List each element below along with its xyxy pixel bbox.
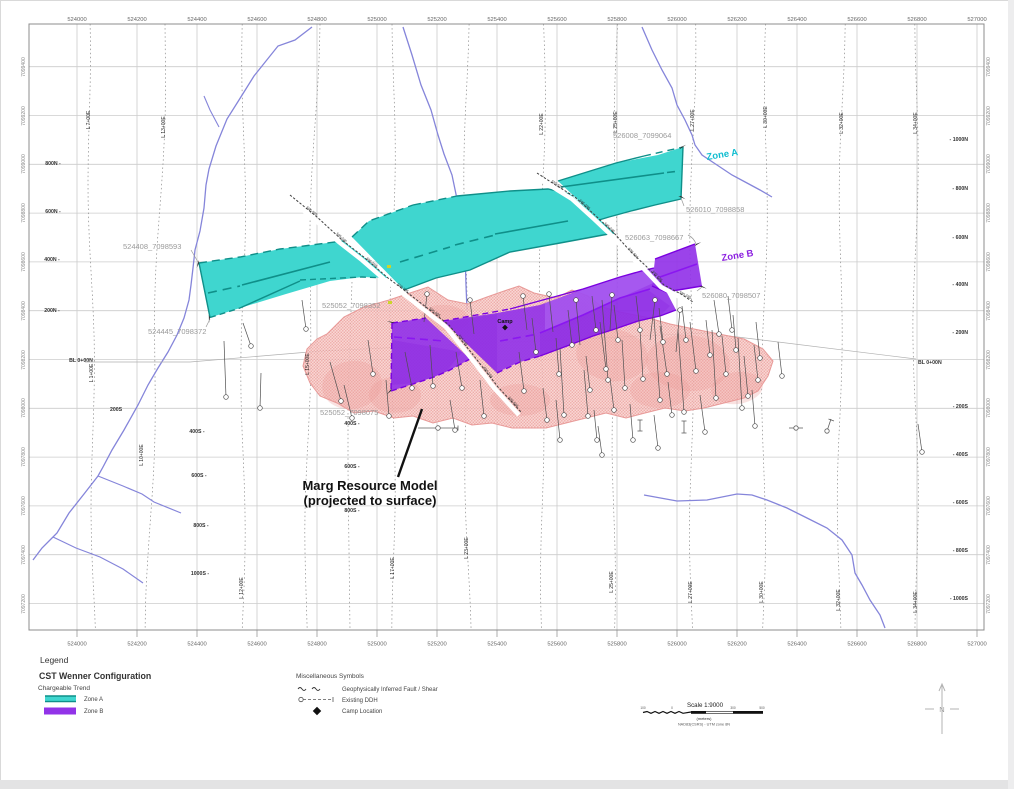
svg-text:7097200: 7097200 — [21, 594, 27, 614]
svg-text:L 13+00E: L 13+00E — [161, 116, 167, 138]
svg-text:800S -: 800S - — [193, 523, 209, 529]
svg-text:7098600: 7098600 — [986, 252, 992, 272]
svg-text:L 27+00E: L 27+00E — [688, 581, 694, 603]
svg-text:7098200: 7098200 — [21, 350, 27, 370]
svg-text:7099200: 7099200 — [986, 106, 992, 126]
svg-text:Chargeable Trend: Chargeable Trend — [38, 685, 90, 692]
svg-text:400S -: 400S - — [189, 429, 205, 435]
svg-text:500: 500 — [759, 706, 765, 710]
svg-text:526063_7098667: 526063_7098667 — [625, 233, 683, 242]
svg-text:526200: 526200 — [727, 17, 746, 23]
svg-text:7098400: 7098400 — [986, 301, 992, 321]
svg-text:526400: 526400 — [787, 642, 806, 648]
svg-text:524800: 524800 — [307, 642, 326, 648]
svg-text:525800: 525800 — [607, 17, 626, 23]
svg-text:800N -: 800N - — [45, 161, 61, 167]
svg-text:7099400: 7099400 — [986, 57, 992, 77]
svg-text:526600: 526600 — [847, 17, 866, 23]
svg-text:L 32+00E: L 32+00E — [836, 589, 842, 611]
svg-text:7097600: 7097600 — [986, 496, 992, 516]
svg-text:L 27+00E: L 27+00E — [690, 109, 696, 131]
svg-text:L 10+00E: L 10+00E — [139, 444, 145, 466]
svg-text:N: N — [939, 705, 944, 714]
svg-text:Marg Resource Model: Marg Resource Model — [302, 478, 437, 493]
svg-text:- 1000N: - 1000N — [950, 137, 969, 143]
svg-text:7098400: 7098400 — [21, 301, 27, 321]
svg-text:525400: 525400 — [487, 17, 506, 23]
svg-text:Camp Location: Camp Location — [342, 709, 382, 715]
svg-text:(projected to surface): (projected to surface) — [304, 493, 437, 508]
svg-text:524400: 524400 — [187, 642, 206, 648]
svg-text:200N -: 200N - — [44, 308, 60, 314]
svg-text:525600: 525600 — [547, 642, 566, 648]
svg-text:L 1+00E: L 1+00E — [89, 363, 95, 382]
svg-text:527000: 527000 — [967, 642, 986, 648]
svg-text:200S: 200S — [110, 407, 123, 413]
svg-text:L 32+00E: L 32+00E — [839, 112, 845, 134]
svg-text:- 200S: - 200S — [953, 404, 969, 410]
svg-text:BL 0+00N: BL 0+00N — [69, 358, 93, 364]
svg-text:7099000: 7099000 — [986, 154, 992, 174]
svg-text:Miscellaneous Symbols: Miscellaneous Symbols — [296, 673, 365, 680]
svg-text:7098200: 7098200 — [986, 350, 992, 370]
svg-text:524800: 524800 — [307, 17, 326, 23]
svg-text:524600: 524600 — [247, 642, 266, 648]
svg-text:525052_7098075: 525052_7098075 — [320, 408, 378, 417]
svg-text:7099400: 7099400 — [21, 57, 27, 77]
svg-text:524200: 524200 — [127, 17, 146, 23]
svg-text:7098000: 7098000 — [986, 398, 992, 418]
svg-text:524400: 524400 — [187, 17, 206, 23]
svg-text:526800: 526800 — [907, 642, 926, 648]
svg-text:0: 0 — [671, 706, 673, 710]
svg-text:- 600N: - 600N — [952, 235, 968, 241]
svg-text:525400: 525400 — [487, 642, 506, 648]
svg-text:526000: 526000 — [667, 17, 686, 23]
svg-text:7099000: 7099000 — [21, 154, 27, 174]
svg-text:Existing DDH: Existing DDH — [342, 698, 378, 704]
svg-text:7099200: 7099200 — [21, 106, 27, 126]
svg-text:Camp: Camp — [497, 319, 513, 325]
svg-text:L 17+00E: L 17+00E — [390, 557, 396, 579]
svg-text:526008_7099064: 526008_7099064 — [613, 131, 671, 140]
svg-text:7098800: 7098800 — [986, 203, 992, 223]
svg-text:524200: 524200 — [127, 642, 146, 648]
svg-text:7098600: 7098600 — [21, 252, 27, 272]
svg-text:- 800N: - 800N — [952, 186, 968, 192]
svg-text:L 22+00E: L 22+00E — [539, 113, 545, 135]
svg-text:Legend: Legend — [40, 655, 69, 665]
svg-text:7097600: 7097600 — [21, 496, 27, 516]
svg-text:7098800: 7098800 — [21, 203, 27, 223]
svg-text:524408_7098593: 524408_7098593 — [123, 242, 181, 251]
svg-text:- 1000S: - 1000S — [950, 596, 969, 602]
svg-text:7097400: 7097400 — [21, 545, 27, 565]
svg-text:L 25+00E: L 25+00E — [609, 571, 615, 593]
svg-text:NAD83(CSRS) - UTM zone 8N: NAD83(CSRS) - UTM zone 8N — [678, 723, 730, 727]
svg-text:524000: 524000 — [67, 17, 86, 23]
svg-text:L 34+00E: L 34+00E — [913, 591, 919, 613]
svg-text:7098000: 7098000 — [21, 398, 27, 418]
svg-text:L 30+00E: L 30+00E — [759, 581, 765, 603]
svg-text:- 200N: - 200N — [952, 330, 968, 336]
svg-text:600S -: 600S - — [344, 464, 360, 470]
svg-text:Geophysically Inferred Fault /: Geophysically Inferred Fault / Shear — [342, 687, 438, 693]
svg-text:600S -: 600S - — [191, 473, 207, 479]
svg-text:7097400: 7097400 — [986, 545, 992, 565]
svg-text:525600: 525600 — [547, 17, 566, 23]
svg-text:525052_7098352: 525052_7098352 — [322, 301, 380, 310]
svg-text:L 30+00E: L 30+00E — [763, 106, 769, 128]
svg-text:300: 300 — [730, 706, 736, 710]
svg-text:524600: 524600 — [247, 17, 266, 23]
svg-text:526200: 526200 — [727, 642, 746, 648]
svg-text:526010_7098858: 526010_7098858 — [686, 205, 744, 214]
svg-text:526800: 526800 — [907, 17, 926, 23]
svg-text:- 400N: - 400N — [952, 282, 968, 288]
svg-text:L 23+00E: L 23+00E — [464, 537, 470, 559]
svg-text:526080_7098507: 526080_7098507 — [702, 291, 760, 300]
svg-text:L 25+00E: L 25+00E — [613, 111, 619, 133]
svg-text:524445_7098372: 524445_7098372 — [148, 327, 206, 336]
svg-text:Zone A: Zone A — [84, 697, 103, 703]
svg-text:800S -: 800S - — [344, 508, 360, 514]
svg-text:600N -: 600N - — [45, 209, 61, 215]
svg-text:- 800S: - 800S — [953, 548, 969, 554]
svg-text:525800: 525800 — [607, 642, 626, 648]
svg-text:- 600S: - 600S — [953, 500, 969, 506]
svg-text:Scale 1:9000: Scale 1:9000 — [687, 702, 724, 709]
svg-text:L 34+00E: L 34+00E — [913, 112, 919, 134]
svg-text:525000: 525000 — [367, 17, 386, 23]
svg-text:526000: 526000 — [667, 642, 686, 648]
svg-text:100: 100 — [640, 706, 646, 710]
svg-text:400S -: 400S - — [344, 421, 360, 427]
svg-text:CST Wenner Configuration: CST Wenner Configuration — [39, 671, 151, 681]
svg-text:Zone B: Zone B — [84, 709, 103, 715]
svg-text:- 400S: - 400S — [953, 452, 969, 458]
svg-text:BL 0+00N: BL 0+00N — [918, 360, 942, 366]
svg-text:400N -: 400N - — [44, 257, 60, 263]
svg-text:526600: 526600 — [847, 642, 866, 648]
svg-text:525000: 525000 — [367, 642, 386, 648]
svg-text:7097800: 7097800 — [986, 447, 992, 467]
svg-text:527000: 527000 — [967, 17, 986, 23]
svg-text:7097200: 7097200 — [986, 594, 992, 614]
svg-text:525200: 525200 — [427, 17, 446, 23]
svg-text:525200: 525200 — [427, 642, 446, 648]
svg-text:524000: 524000 — [67, 642, 86, 648]
svg-text:526400: 526400 — [787, 17, 806, 23]
svg-text:L 12+00E: L 12+00E — [239, 577, 245, 599]
svg-text:L 15+00E: L 15+00E — [305, 353, 311, 375]
svg-text:(meters): (meters) — [697, 716, 713, 721]
svg-text:L 7+00E: L 7+00E — [86, 110, 92, 129]
svg-text:1000S -: 1000S - — [191, 571, 209, 577]
svg-text:7097800: 7097800 — [21, 447, 27, 467]
